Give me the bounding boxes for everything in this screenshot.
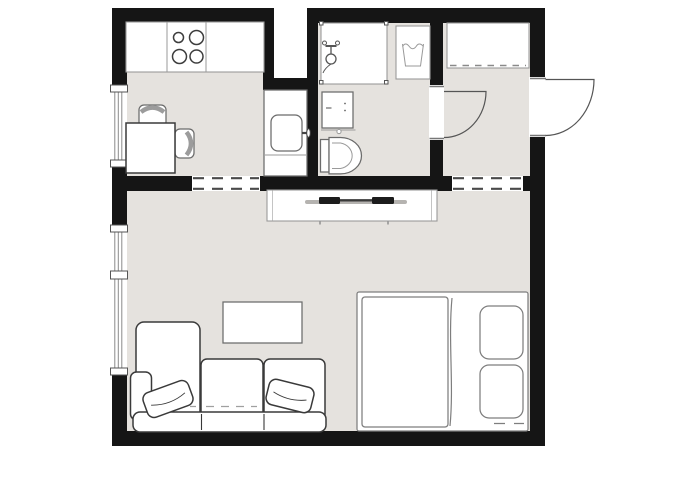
tv-sideboard: [267, 190, 437, 225]
bottom-outer-wall: [112, 431, 545, 446]
floorplan-svg: [0, 0, 700, 500]
washing-machine: [396, 26, 430, 79]
shower: [320, 22, 389, 85]
double-bed: [357, 292, 528, 431]
bed-pillow-top: [480, 306, 523, 359]
top-wall-left-segment: [112, 8, 273, 23]
wardrobe: [447, 23, 529, 68]
divider-wall-center: [260, 176, 452, 191]
bathroom-door-opening: [429, 85, 444, 140]
entry-door-opening: [529, 77, 546, 137]
vanity-sink: [321, 92, 356, 134]
bed-duvet: [362, 297, 448, 427]
living-window-cap-bottom: [111, 368, 128, 375]
dining-chair-right: [175, 129, 194, 158]
top-wall-right-segment: [307, 8, 545, 23]
kitchen-window-cap-bottom: [111, 160, 128, 167]
living-room-window: [111, 225, 128, 375]
dining-table: [126, 123, 175, 173]
entry-door: [529, 77, 594, 137]
utility-closet: [264, 90, 310, 176]
kitchen-shaft-wall: [263, 8, 274, 90]
utility-sink-icon: [271, 115, 302, 151]
living-window-opening: [111, 225, 127, 375]
kitchen-window: [111, 85, 128, 167]
toilet: [321, 138, 362, 174]
divider-wall-right: [523, 176, 545, 191]
living-window-mullion: [111, 271, 128, 279]
floorplan-image: [0, 0, 700, 500]
kitchen-window-opening: [111, 85, 127, 167]
kitchen-counter: [126, 22, 264, 72]
tv-screen-right: [372, 197, 394, 204]
kitchen-window-cap-top: [111, 85, 128, 92]
sofa-seat-middle: [201, 359, 263, 420]
tv-screen-left: [319, 197, 340, 204]
toilet-tank: [321, 140, 330, 173]
divider-wall-left: [112, 176, 192, 191]
closet-bathroom-wall: [307, 8, 318, 191]
right-outer-wall: [530, 8, 545, 446]
living-window-cap-top: [111, 225, 128, 232]
coffee-table: [223, 302, 302, 343]
entrance-hall: [447, 23, 529, 68]
bed-pillow-bottom: [480, 365, 523, 418]
entry-door-swing: [546, 80, 595, 136]
